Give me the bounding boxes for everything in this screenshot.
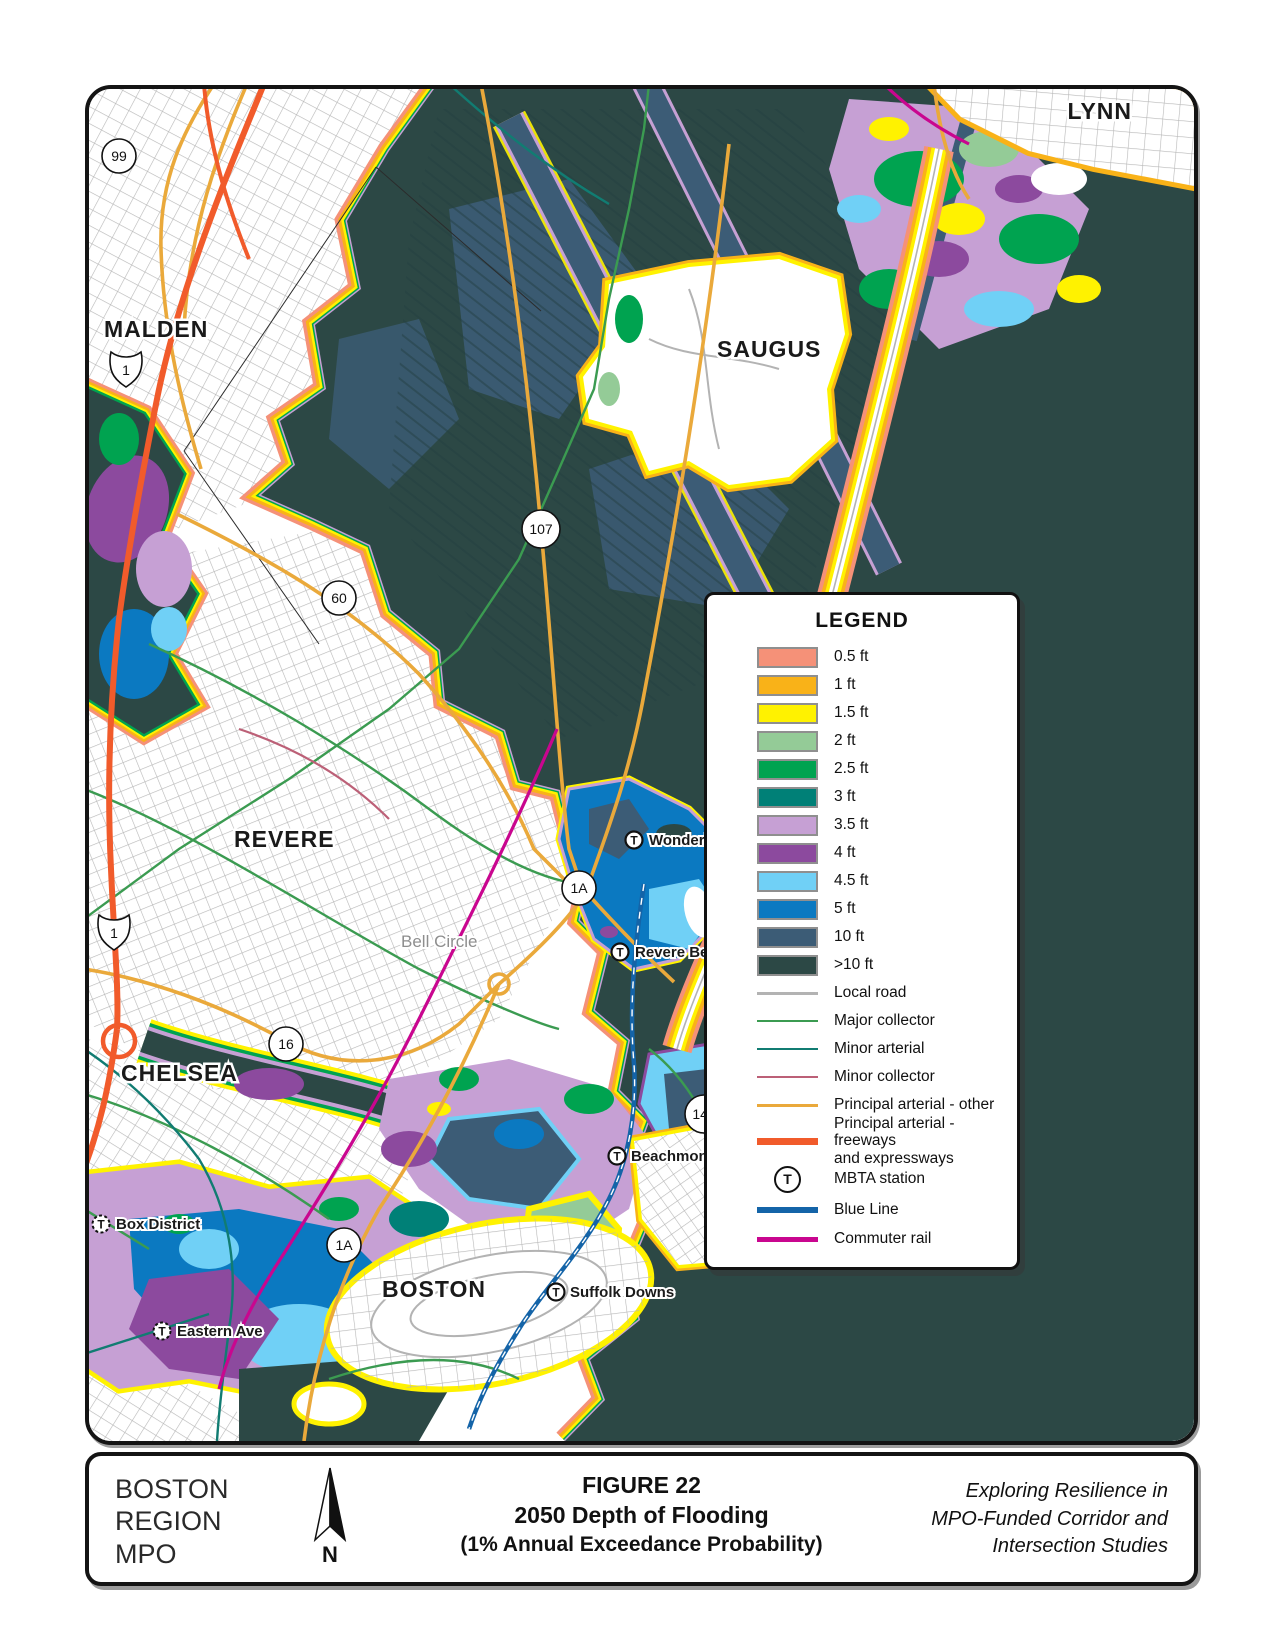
label-boston: BOSTON — [382, 1276, 486, 1302]
svg-text:60: 60 — [331, 590, 347, 606]
depth-swatch — [757, 871, 818, 892]
freeway-line-swatch — [757, 1138, 818, 1145]
shield-60: 60 — [322, 581, 356, 615]
mbta-station-icon: T — [774, 1166, 801, 1193]
legend-depth-row: 0.5 ft — [707, 643, 1017, 671]
study-series-title: Exploring Resilience in MPO-Funded Corri… — [931, 1478, 1168, 1561]
station-beachmont-icon: T — [609, 1148, 626, 1165]
label-chelsea: CHELSEA — [121, 1060, 238, 1086]
legend-road-row: Minor collector — [707, 1063, 1017, 1091]
station-suffolk-downs-icon: T — [548, 1284, 565, 1301]
road-line-swatch — [757, 1020, 818, 1023]
flood-map: T T T T T — [85, 85, 1198, 1445]
legend-depth-row: 2.5 ft — [707, 755, 1017, 783]
station-wonderland-icon: T — [626, 832, 643, 849]
legend-depth-row: 4.5 ft — [707, 867, 1017, 895]
depth-swatch — [757, 703, 818, 724]
legend-depth-row: 2 ft — [707, 727, 1017, 755]
road-line-swatch — [757, 1048, 818, 1051]
label-saugus: SAUGUS — [717, 336, 821, 362]
station-box-district-icon: T — [93, 1216, 110, 1233]
svg-text:99: 99 — [111, 148, 127, 164]
legend-freeway-row: Principal arterial - freeways and expres… — [707, 1119, 1017, 1163]
legend-road-row: Minor arterial — [707, 1035, 1017, 1063]
svg-text:1: 1 — [110, 925, 118, 941]
svg-text:107: 107 — [529, 521, 553, 537]
label-lynn: LYNN — [1068, 98, 1133, 124]
svg-text:T: T — [616, 946, 624, 960]
label-revere: REVERE — [234, 826, 335, 852]
svg-text:1A: 1A — [570, 880, 588, 896]
depth-swatch — [757, 647, 818, 668]
legend-road-row: Major collector — [707, 1007, 1017, 1035]
legend-commuter-rail-row: Commuter rail — [707, 1225, 1017, 1253]
legend-road-row: Local road — [707, 979, 1017, 1007]
svg-text:T: T — [613, 1150, 621, 1164]
station-eastern-ave-icon: T — [154, 1323, 171, 1340]
svg-text:T: T — [158, 1325, 166, 1339]
flood-map-canvas: T T T T T — [89, 89, 1194, 1441]
depth-swatch — [757, 787, 818, 808]
depth-swatch — [757, 675, 818, 696]
road-line-swatch — [757, 1104, 818, 1107]
legend-depth-row: 4 ft — [707, 839, 1017, 867]
legend-depth-row: 3 ft — [707, 783, 1017, 811]
legend-depth-row: >10 ft — [707, 951, 1017, 979]
road-line-swatch — [757, 992, 818, 995]
station-revere-beach-icon: T — [612, 944, 629, 961]
shield-99: 99 — [102, 139, 136, 173]
figure-footer: BOSTON REGION MPO N FIGURE 22 2050 Depth… — [85, 1452, 1198, 1586]
legend-depth-row: 3.5 ft — [707, 811, 1017, 839]
blue-line-swatch — [757, 1207, 818, 1213]
legend-depth-row: 1.5 ft — [707, 699, 1017, 727]
shield-1a-south: 1A — [327, 1228, 361, 1262]
svg-text:T: T — [97, 1218, 105, 1232]
svg-text:16: 16 — [278, 1036, 294, 1052]
depth-swatch — [757, 927, 818, 948]
shield-16: 16 — [269, 1027, 303, 1061]
svg-text:T: T — [630, 834, 638, 848]
depth-swatch — [757, 843, 818, 864]
legend-title: LEGEND — [707, 605, 1017, 643]
road-line-swatch — [757, 1076, 818, 1079]
label-malden: MALDEN — [104, 316, 208, 342]
commuter-rail-swatch — [757, 1237, 818, 1242]
label-beachmont: Beachmont — [631, 1148, 713, 1165]
depth-swatch — [757, 955, 818, 976]
svg-text:1: 1 — [122, 362, 130, 378]
legend-blue-line-row: Blue Line — [707, 1195, 1017, 1225]
svg-text:1A: 1A — [335, 1237, 353, 1253]
legend-depth-row: 10 ft — [707, 923, 1017, 951]
figure-page: T T T T T — [0, 0, 1275, 1650]
shield-107: 107 — [522, 510, 560, 548]
depth-swatch — [757, 899, 818, 920]
label-suffolk-downs: Suffolk Downs — [570, 1284, 674, 1301]
shield-1a-north: 1A — [562, 871, 596, 905]
depth-swatch — [757, 815, 818, 836]
legend-mbta-row: T MBTA station — [707, 1163, 1017, 1195]
depth-swatch — [757, 731, 818, 752]
legend: LEGEND 0.5 ft 1 ft 1.5 ft 2 ft 2.5 ft 3 … — [704, 592, 1020, 1270]
label-eastern-ave: Eastern Ave — [177, 1323, 263, 1340]
depth-swatch — [757, 759, 818, 780]
label-bell-circle: Bell Circle — [401, 932, 478, 951]
label-box-district: Box District — [116, 1216, 200, 1233]
svg-text:T: T — [552, 1286, 560, 1300]
legend-depth-row: 5 ft — [707, 895, 1017, 923]
legend-depth-row: 1 ft — [707, 671, 1017, 699]
